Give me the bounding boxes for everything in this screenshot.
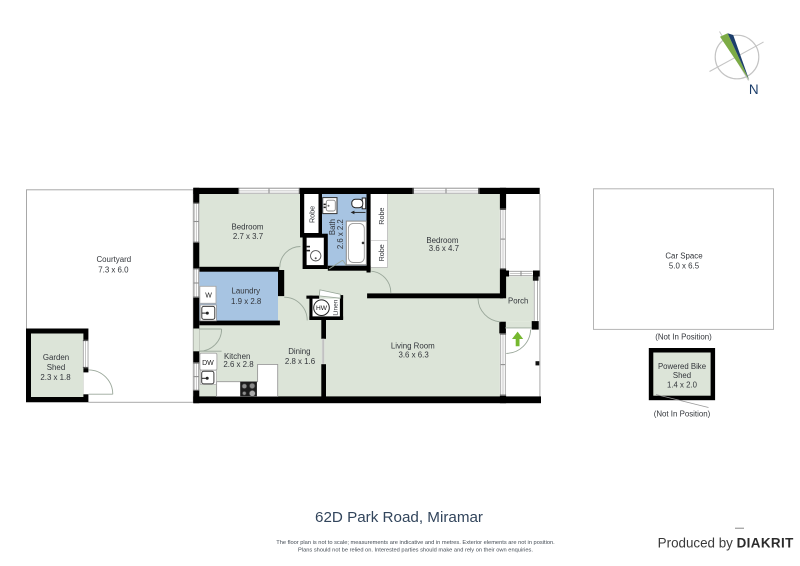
svg-text:Robe: Robe xyxy=(377,244,386,261)
svg-text:Robe: Robe xyxy=(307,206,316,223)
svg-text:DW: DW xyxy=(202,360,214,367)
svg-text:(Not In Position): (Not In Position) xyxy=(655,332,712,341)
svg-text:1.9 x 2.8: 1.9 x 2.8 xyxy=(231,297,262,306)
svg-text:7.3 x 6.0: 7.3 x 6.0 xyxy=(98,265,129,274)
svg-text:Plans should not be relied on.: Plans should not be relied on. Intereste… xyxy=(298,547,533,553)
svg-text:(Not In Position): (Not In Position) xyxy=(654,410,711,419)
svg-text:Laundry: Laundry xyxy=(232,286,261,295)
svg-text:5.0 x 6.5: 5.0 x 6.5 xyxy=(669,262,700,271)
svg-text:Shed: Shed xyxy=(673,371,691,380)
svg-text:2.6 x 2.8: 2.6 x 2.8 xyxy=(223,360,254,369)
svg-text:Living Room: Living Room xyxy=(391,341,435,350)
svg-text:Robe: Robe xyxy=(377,208,386,225)
svg-text:N: N xyxy=(749,82,759,97)
svg-text:2.7 x 3.7: 2.7 x 3.7 xyxy=(233,232,263,241)
svg-text:2.3 x 1.8: 2.3 x 1.8 xyxy=(40,373,71,382)
svg-text:2.6 x 2.2: 2.6 x 2.2 xyxy=(336,219,345,249)
svg-text:62D Park Road, Miramar: 62D Park Road, Miramar xyxy=(315,509,483,526)
svg-text:W: W xyxy=(205,293,212,300)
svg-text:Bedroom: Bedroom xyxy=(231,222,263,231)
svg-text:Courtyard: Courtyard xyxy=(96,255,131,264)
svg-text:Powered Bike: Powered Bike xyxy=(658,362,706,371)
svg-text:Garden: Garden xyxy=(43,353,69,362)
svg-text:3.6 x 4.7: 3.6 x 4.7 xyxy=(429,244,459,253)
svg-text:Shed: Shed xyxy=(47,363,65,372)
svg-text:Produced by DIAKRIT: Produced by DIAKRIT xyxy=(658,536,794,551)
svg-text:1.4 x 2.0: 1.4 x 2.0 xyxy=(667,381,698,390)
svg-text:Porch: Porch xyxy=(508,297,528,306)
svg-text:Car Space: Car Space xyxy=(665,252,703,261)
svg-text:Linen: Linen xyxy=(332,299,339,315)
svg-text:Dining: Dining xyxy=(288,347,310,356)
svg-text:2.8 x 1.6: 2.8 x 1.6 xyxy=(285,357,316,366)
svg-text:3.6 x 6.3: 3.6 x 6.3 xyxy=(398,350,429,359)
svg-text:The floor plan is not to scale: The floor plan is not to scale; measurem… xyxy=(276,540,555,546)
svg-text:HW: HW xyxy=(316,305,328,312)
